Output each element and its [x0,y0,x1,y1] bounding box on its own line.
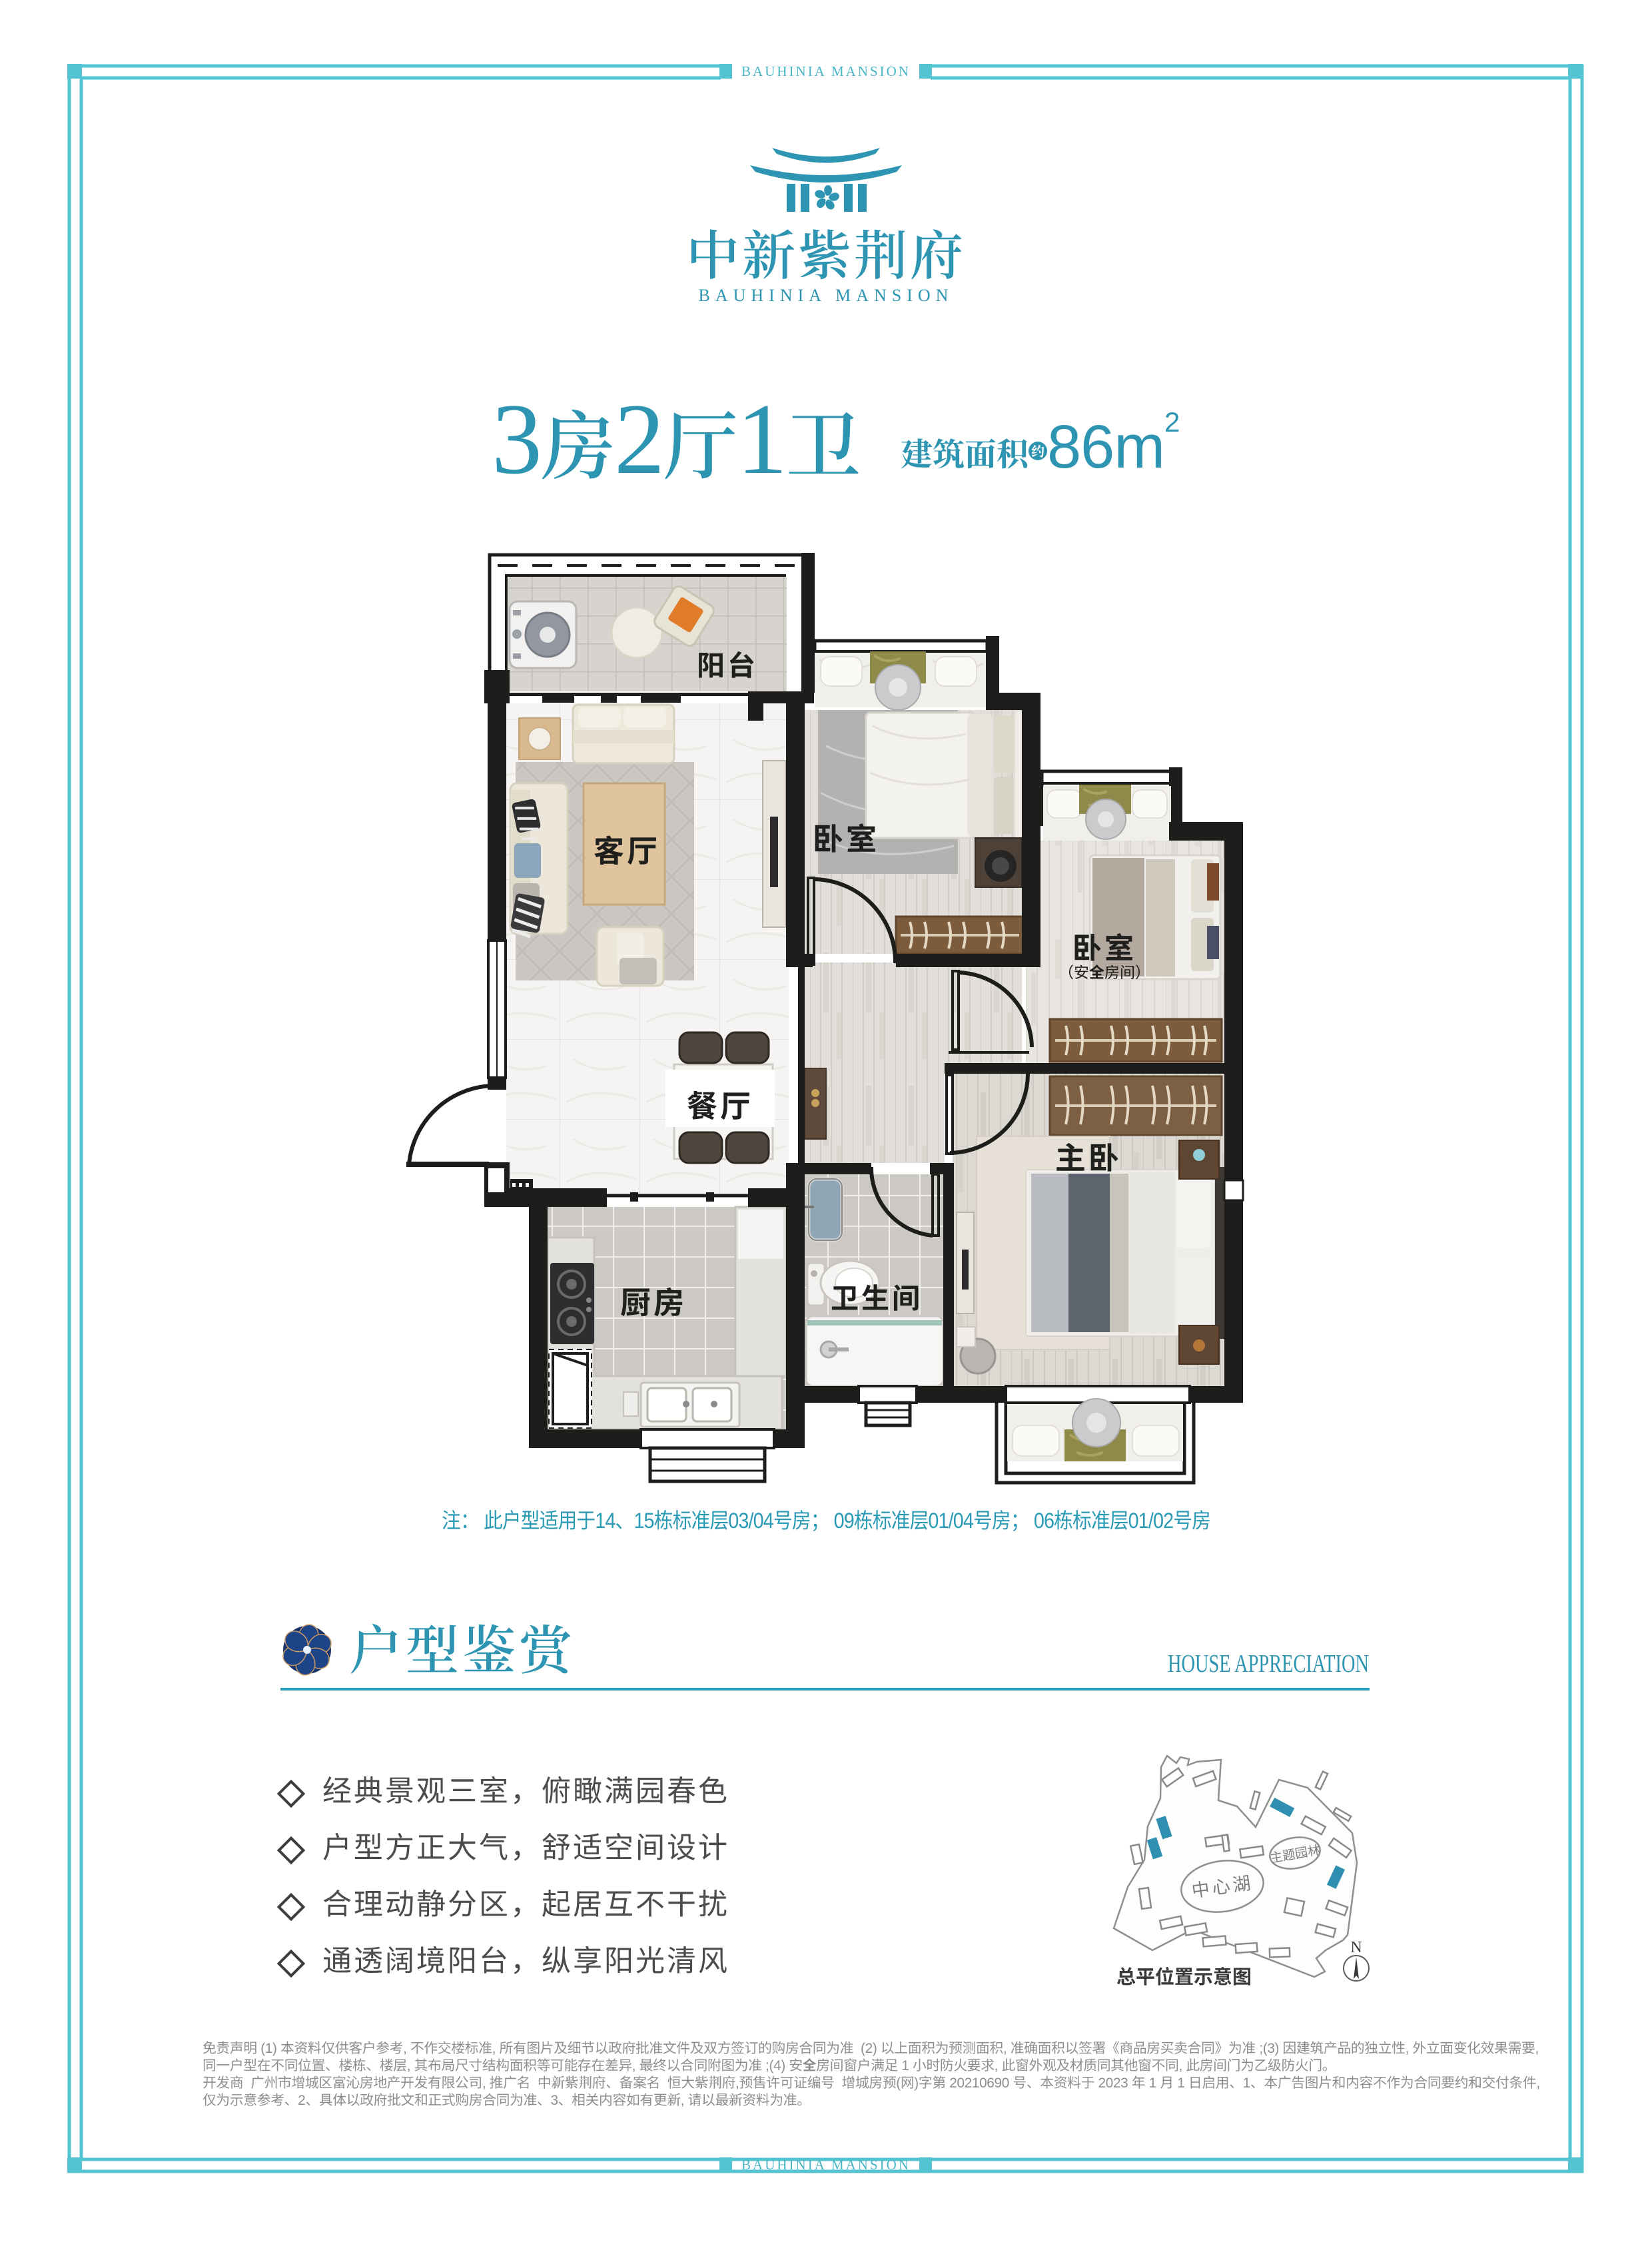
svg-text:01/02: 01/02 [1128,1509,1174,1533]
svg-text:,: , [1406,2041,1413,2056]
svg-text:06: 06 [1029,1509,1054,1533]
svg-text:;(3): ;(3) [1256,2041,1283,2056]
svg-text:HOUSE APPRECIATION: HOUSE APPRECIATION [1168,1650,1369,1678]
svg-text:1: 1 [1243,2075,1250,2091]
svg-text:BAUHINIA MANSION: BAUHINIA MANSION [699,286,954,305]
svg-text:3: 3 [492,383,542,495]
svg-text:;(4): ;(4) [762,2058,789,2073]
svg-text:03/04: 03/04 [728,1509,774,1533]
svg-text:,: , [482,2075,490,2091]
svg-text:20210690: 20210690 [946,2075,1013,2091]
svg-text:): ) [914,2075,919,2091]
svg-text:(1): (1) [257,2041,280,2056]
svg-text:15: 15 [633,1509,653,1533]
svg-text:2: 2 [1164,406,1180,438]
svg-text:2: 2 [298,2093,305,2108]
svg-text:,: , [735,2075,739,2091]
svg-text:BAUHINIA MANSION: BAUHINIA MANSION [741,2157,911,2173]
svg-text:N: N [1350,1939,1362,1956]
svg-text:2: 2 [614,383,665,495]
svg-text:,: , [1535,2041,1539,2056]
svg-text:2023: 2023 [1094,2075,1132,2091]
svg-text:,: , [632,2058,639,2073]
svg-text:01/04: 01/04 [928,1509,974,1533]
svg-text:,: , [407,2058,414,2073]
svg-text:09: 09 [829,1509,854,1533]
svg-text:,: , [681,2093,688,2108]
svg-text:BAUHINIA MANSION: BAUHINIA MANSION [741,63,911,79]
svg-text:86m: 86m [1047,413,1164,481]
svg-text:,: , [1003,2041,1011,2056]
svg-text:3: 3 [551,2093,558,2108]
svg-text:,: , [1536,2075,1539,2091]
svg-text:1: 1 [1174,2075,1188,2091]
svg-text:(2): (2) [853,2041,881,2056]
svg-text:,: , [1179,2058,1186,2073]
svg-text:14: 14 [595,1509,616,1533]
svg-text:1: 1 [898,2058,913,2073]
svg-text:,: , [492,2041,500,2056]
svg-text:1: 1 [737,383,787,495]
svg-text:(: ( [896,2075,901,2091]
svg-text:,: , [403,2041,410,2056]
svg-text:,: , [995,2058,1002,2073]
svg-text:1: 1 [1145,2075,1160,2091]
